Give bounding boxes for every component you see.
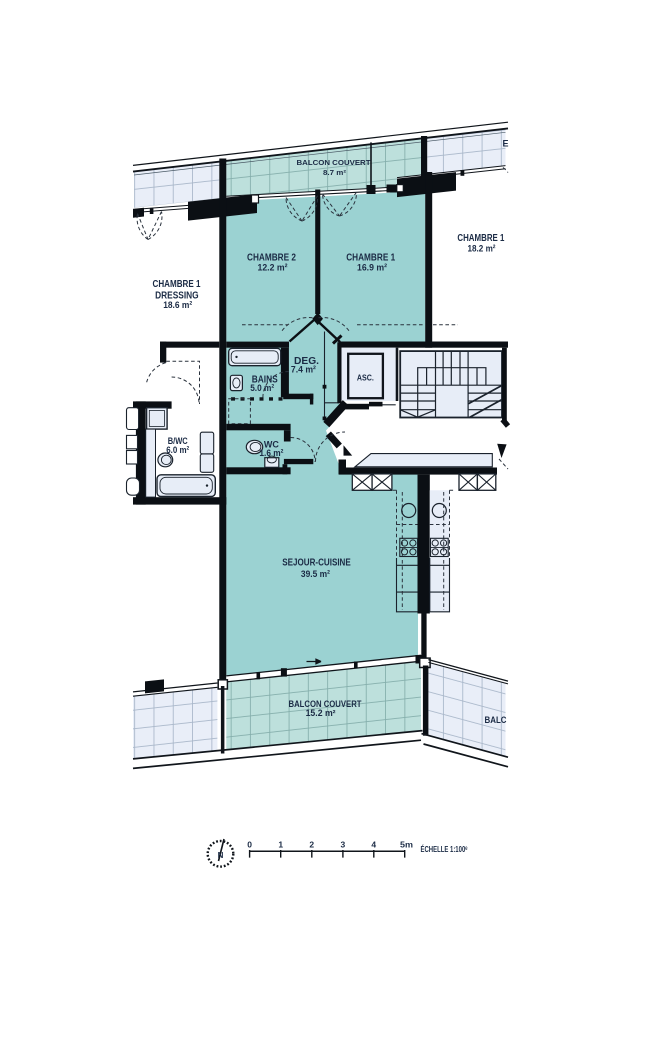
- svg-text:5m: 5m: [400, 840, 413, 850]
- svg-text:N: N: [218, 851, 224, 860]
- svg-text:7.4 m²: 7.4 m²: [291, 365, 316, 376]
- svg-text:4: 4: [371, 840, 376, 850]
- svg-text:12.2 m²: 12.2 m²: [258, 263, 288, 274]
- svg-text:18.6 m²: 18.6 m²: [163, 300, 192, 311]
- svg-text:3: 3: [341, 840, 346, 850]
- svg-text:E: E: [503, 139, 509, 149]
- svg-text:16.9 m²: 16.9 m²: [357, 263, 387, 274]
- svg-text:39.5 m²: 39.5 m²: [301, 569, 330, 580]
- svg-text:15.2 m²: 15.2 m²: [306, 708, 336, 718]
- svg-text:ÉCHELLE 1:100ᵉ: ÉCHELLE 1:100ᵉ: [421, 844, 468, 854]
- svg-text:6.0 m²: 6.0 m²: [166, 445, 189, 456]
- svg-text:CHAMBRE 1: CHAMBRE 1: [153, 279, 201, 290]
- svg-text:18.2 m²: 18.2 m²: [468, 243, 496, 254]
- svg-text:ASC.: ASC.: [357, 372, 374, 382]
- svg-text:5.0 m²: 5.0 m²: [250, 383, 274, 394]
- svg-text:8.7 m²: 8.7 m²: [323, 168, 347, 177]
- svg-text:BALCON COUVERT: BALCON COUVERT: [297, 158, 372, 167]
- svg-text:0: 0: [247, 840, 252, 850]
- svg-text:1: 1: [278, 840, 283, 850]
- svg-text:1.6 m²: 1.6 m²: [259, 448, 283, 459]
- svg-text:BALC: BALC: [485, 715, 507, 725]
- svg-text:SEJOUR-CUISINE: SEJOUR-CUISINE: [282, 557, 351, 568]
- svg-text:2: 2: [309, 840, 314, 850]
